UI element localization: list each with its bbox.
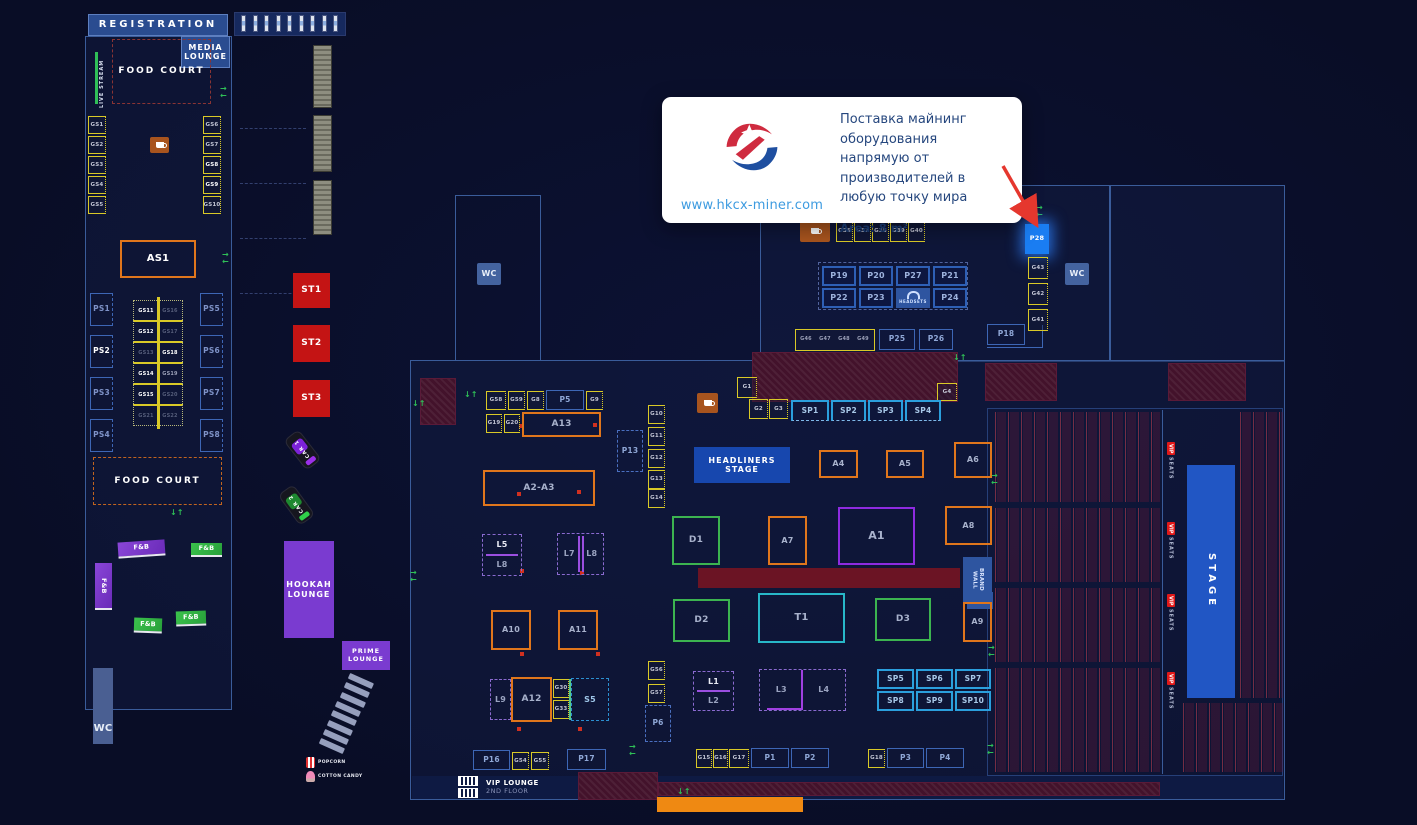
wc-main-left[interactable]: WC xyxy=(477,263,501,285)
vip-badge: VIP xyxy=(1167,594,1175,607)
booth-label: S5 xyxy=(584,695,596,704)
popcorn-label: POPCORN xyxy=(318,760,346,765)
booth-label: G47 xyxy=(819,337,831,343)
booth-gs17[interactable]: GS17 xyxy=(159,325,181,341)
booth-g12[interactable]: G12 xyxy=(648,449,665,468)
live-stream-line xyxy=(95,52,98,104)
turnstile-gate xyxy=(253,15,258,32)
booth-label: SP5 xyxy=(887,675,904,684)
booth-label: WC xyxy=(94,723,113,735)
vip-seats-label: VIPSEATS xyxy=(1164,594,1177,646)
booth-label: SP10 xyxy=(962,697,984,706)
booth-g30[interactable]: G30 xyxy=(553,679,569,698)
escalator xyxy=(313,180,332,235)
booth-g19[interactable]: G19 xyxy=(486,414,502,433)
audience-seats xyxy=(995,668,1160,772)
booth-p20[interactable]: P20 xyxy=(859,266,893,286)
booth-label: GS13 xyxy=(138,351,153,357)
booth-g3[interactable]: G3 xyxy=(769,399,788,419)
booth-label: FOOD COURT xyxy=(118,66,204,76)
booth-gs13[interactable]: GS13 xyxy=(135,346,157,362)
booth-label: G46 xyxy=(800,337,812,343)
booth-p27[interactable]: P27 xyxy=(896,266,930,286)
entrance-arrows-icon: ↓↑ xyxy=(677,789,690,796)
booth-g56[interactable]: G56 xyxy=(648,661,665,680)
booth-p18[interactable]: P18 xyxy=(987,324,1025,345)
booth-label: HEADLINERS STAGE xyxy=(708,456,775,474)
booth-g16[interactable]: G16 xyxy=(713,749,728,768)
entrance-arrows-icon: →← xyxy=(987,743,994,757)
booth-g17[interactable]: G17 xyxy=(729,749,749,768)
booth-label: STAGE xyxy=(1205,553,1217,609)
booth-g4[interactable]: G4 xyxy=(937,383,957,401)
fnb-stand[interactable]: F&B xyxy=(134,618,163,634)
booth-label: G33 xyxy=(555,706,568,712)
seats-label: SEATS xyxy=(1168,457,1174,480)
fnb-stand[interactable]: F&B xyxy=(95,563,112,610)
coffee-cup-icon xyxy=(150,137,169,153)
booth-label: P13 xyxy=(622,447,639,456)
booth-sp4[interactable]: SP4 xyxy=(905,400,941,421)
booth-label: G57 xyxy=(650,690,663,696)
booth-g58[interactable]: G58 xyxy=(486,391,506,410)
headliners-stage-zone[interactable]: HEADLINERS STAGE xyxy=(694,447,790,483)
brand-wall-zone[interactable]: BRAND WALL xyxy=(963,557,992,602)
turnstile-gate xyxy=(241,15,246,32)
booth-a6[interactable]: A6 xyxy=(954,442,992,478)
booth-label: G19 xyxy=(488,420,501,426)
turnstile-gate xyxy=(333,15,338,32)
booth-p6[interactable]: P6 xyxy=(645,705,671,742)
booth-p1[interactable]: P1 xyxy=(751,748,789,768)
wc-left-hall[interactable]: WC xyxy=(93,668,113,744)
booth-g13[interactable]: G13 xyxy=(648,470,665,489)
booth-sp6[interactable]: SP6 xyxy=(916,669,953,689)
booth-gs6[interactable]: GS6 xyxy=(203,116,221,134)
booth-label: G20 xyxy=(506,420,519,426)
booth-label: G4 xyxy=(943,389,952,395)
booth-ps4[interactable]: PS4 xyxy=(90,419,113,452)
booth-p4[interactable]: P4 xyxy=(926,748,964,768)
booth-label: A12 xyxy=(521,694,541,704)
booth-label: G11 xyxy=(650,433,663,439)
vip-badge: VIP xyxy=(1167,672,1175,685)
entrance-arrows-icon: →← xyxy=(220,86,227,100)
vip-seats-label: VIPSEATS xyxy=(1164,522,1177,574)
booth-label: AS1 xyxy=(147,253,170,265)
booth-sp2[interactable]: SP2 xyxy=(831,400,866,421)
booth-ps6[interactable]: PS6 xyxy=(200,335,223,368)
wc-main-right[interactable]: WC xyxy=(1065,263,1089,285)
booth-label: F&B xyxy=(133,544,149,553)
booth-gs19[interactable]: GS19 xyxy=(159,367,181,383)
cotton-candy-label: COTTON CANDY xyxy=(318,774,363,779)
booth-g49[interactable]: G49 xyxy=(854,331,872,348)
booth-p25[interactable]: P25 xyxy=(879,329,915,350)
booth-label: GS4 xyxy=(91,182,104,188)
booth-a7[interactable]: A7 xyxy=(768,516,807,565)
booth-gs8[interactable]: GS8 xyxy=(203,156,221,174)
booth-t1[interactable]: T1 xyxy=(758,593,845,643)
hkcx-miner-logo xyxy=(723,118,781,176)
turnstile-gate xyxy=(310,15,315,32)
booth-label: D3 xyxy=(896,614,910,624)
booth-label: A4 xyxy=(832,459,844,468)
booth-label: A5 xyxy=(899,459,911,468)
expo-floorplan-app: { "popup": { "description": "Поставка ма… xyxy=(0,0,1417,825)
booth-gs10[interactable]: GS10 xyxy=(203,196,221,214)
booth-ps8[interactable]: PS8 xyxy=(200,419,223,452)
booth-p16[interactable]: P16 xyxy=(473,750,510,770)
booth-headsets[interactable]: HEADSETS xyxy=(896,288,930,308)
booth-label: T1 xyxy=(794,612,808,624)
carpet-area xyxy=(578,772,658,800)
booth-label: D2 xyxy=(694,615,708,625)
booth-label: L8 xyxy=(586,549,597,558)
seats-label: SEATS xyxy=(1168,687,1174,710)
booth-p24[interactable]: P24 xyxy=(933,288,967,308)
booth-p23[interactable]: P23 xyxy=(859,288,893,308)
booth-label: G42 xyxy=(1032,291,1045,297)
coffee-cup-icon xyxy=(697,393,718,413)
hall-outline-3 xyxy=(1110,185,1285,362)
booth-ps2[interactable]: PS2 xyxy=(90,335,113,368)
booth-st1[interactable]: ST1 xyxy=(293,273,330,308)
booth-a1[interactable]: A1 xyxy=(838,507,915,565)
booth-st2[interactable]: ST2 xyxy=(293,325,330,362)
booth-label: HEADSETS xyxy=(899,300,927,305)
booth-label: G12 xyxy=(650,455,663,461)
entrance-mat xyxy=(657,797,803,812)
booth-g20[interactable]: G20 xyxy=(504,414,520,433)
booth-label: L3 xyxy=(776,685,787,694)
booth-g33[interactable]: G33 xyxy=(553,700,569,719)
booth-label: BRAND WALL xyxy=(971,568,984,591)
booth-label: P16 xyxy=(483,756,500,765)
booth-g57[interactable]: G57 xyxy=(648,684,665,703)
booth-label: PS6 xyxy=(203,347,220,356)
booth-label: P20 xyxy=(867,271,885,280)
booth-g18[interactable]: G18 xyxy=(868,749,885,768)
booth-a2-a3[interactable]: A2-A3 xyxy=(483,470,595,506)
booth-gs2[interactable]: GS2 xyxy=(88,136,106,154)
booth-label: WC xyxy=(481,269,496,278)
booth-label: P22 xyxy=(830,293,848,302)
booth-label: F&B xyxy=(199,545,215,552)
turnstile-gate xyxy=(322,15,327,32)
booth-label: SP4 xyxy=(915,407,932,416)
audience-seats xyxy=(995,508,1160,582)
booth-g43[interactable]: G43 xyxy=(1028,257,1048,279)
booth-website-link[interactable]: www.hkcx-miner.com xyxy=(681,198,823,213)
booth-label: ST2 xyxy=(301,338,321,348)
booth-label: F&B xyxy=(140,620,156,628)
vip-seats-label: VIPSEATS xyxy=(1164,672,1177,724)
booth-label: G49 xyxy=(857,337,869,343)
booth-label: GS5 xyxy=(91,202,104,208)
booth-label: GS11 xyxy=(138,309,153,315)
booth-ps3[interactable]: PS3 xyxy=(90,377,113,410)
booth-label: G54 xyxy=(514,758,527,764)
booth-label: GS18 xyxy=(162,351,177,357)
booth-gs11[interactable]: GS11 xyxy=(135,304,157,320)
booth-label: GS7 xyxy=(206,142,219,148)
booth-a13[interactable]: A13 xyxy=(522,412,601,437)
popcorn-icon xyxy=(306,757,315,768)
booth-gs1[interactable]: GS1 xyxy=(88,116,106,134)
entrance-arrows-icon: ↓↑ xyxy=(953,355,966,362)
booth-l7-l8[interactable]: L7L8 xyxy=(557,533,604,575)
booth-label: SP1 xyxy=(802,407,819,416)
wall-line xyxy=(1162,410,1163,774)
booth-label: G8 xyxy=(531,397,540,403)
food-court-bottom-zone[interactable]: FOOD COURT xyxy=(93,457,222,505)
booth-label: A8 xyxy=(962,521,974,530)
booth-marker-dot xyxy=(578,727,582,731)
booth-a10[interactable]: A10 xyxy=(491,610,531,650)
escalator xyxy=(313,45,332,108)
turnstile-gate xyxy=(276,15,281,32)
booth-sp9[interactable]: SP9 xyxy=(916,691,953,711)
booth-marker-dot xyxy=(596,652,600,656)
booth-gs5[interactable]: GS5 xyxy=(88,196,106,214)
booth-label: G48 xyxy=(838,337,850,343)
booth-label: PS1 xyxy=(93,305,110,314)
booth-label: G3 xyxy=(774,406,783,412)
booth-label: G1 xyxy=(743,384,752,390)
booth-sp8[interactable]: SP8 xyxy=(877,691,914,711)
vip-badge: VIP xyxy=(1167,442,1175,455)
booth-label: G10 xyxy=(650,411,663,417)
audience-seats xyxy=(995,412,1160,502)
booth-info-popup: www.hkcx-miner.com Поставка майнинг обор… xyxy=(662,97,1022,223)
wall-line xyxy=(540,195,541,361)
booth-as1[interactable]: AS1 xyxy=(120,240,196,278)
booth-description: Поставка майнинг оборудования напрямую о… xyxy=(840,110,1004,208)
booth-label: A9 xyxy=(971,617,983,626)
booth-label: G9 xyxy=(590,397,599,403)
booth-marker-dot xyxy=(517,727,521,731)
popcorn-cotton-candy-stand: POPCORN COTTON CANDY xyxy=(306,757,366,785)
booth-ps7[interactable]: PS7 xyxy=(200,377,223,410)
booth-label: SP6 xyxy=(926,675,943,684)
booth-sp7[interactable]: SP7 xyxy=(955,669,991,689)
food-court-top-zone[interactable]: FOOD COURT xyxy=(112,39,211,104)
booth-g14[interactable]: G14 xyxy=(648,489,665,508)
booth-label: GS14 xyxy=(138,372,153,378)
booth-g48[interactable]: G48 xyxy=(835,331,853,348)
booth-label: G15 xyxy=(698,755,711,761)
booth-g9[interactable]: G9 xyxy=(586,391,603,410)
booth-p26[interactable]: P26 xyxy=(919,329,953,350)
entrance-arrows-icon: →← xyxy=(988,645,995,659)
booth-sp3[interactable]: SP3 xyxy=(868,400,903,421)
booth-label: P6 xyxy=(652,719,663,728)
escalator xyxy=(313,115,332,172)
booth-label: G13 xyxy=(650,476,663,482)
seats-label: SEATS xyxy=(1168,609,1174,632)
booth-gs3[interactable]: GS3 xyxy=(88,156,106,174)
booth-l3-l4[interactable]: L3L4 xyxy=(759,669,846,711)
vip-lounge-floor-label: 2ND FLOOR xyxy=(486,787,539,795)
booth-label: P25 xyxy=(889,335,906,344)
prime-lounge-zone[interactable]: PRIME LOUNGE xyxy=(342,641,390,670)
booth-sp10[interactable]: SP10 xyxy=(955,691,991,711)
booth-a9[interactable]: A9 xyxy=(963,602,992,642)
wall-line xyxy=(987,347,1043,348)
booth-label: L1 xyxy=(708,677,719,686)
booth-label: G18 xyxy=(870,755,883,761)
booth-marker-dot xyxy=(520,652,524,656)
booth-g10[interactable]: G10 xyxy=(648,405,665,424)
booth-p21[interactable]: P21 xyxy=(933,266,967,286)
booth-label: P24 xyxy=(941,293,959,302)
fnb-stand[interactable]: F&B xyxy=(191,543,222,557)
booth-label: P1 xyxy=(764,754,775,763)
entrance-arrows-icon: ↓↑ xyxy=(464,392,477,399)
booth-gs21[interactable]: GS21 xyxy=(135,409,157,425)
booth-a11[interactable]: A11 xyxy=(558,610,598,650)
booth-label: GS2 xyxy=(91,142,104,148)
booth-sp5[interactable]: SP5 xyxy=(877,669,914,689)
booth-a12[interactable]: A12 xyxy=(511,677,552,722)
coffee-cup-icon xyxy=(800,220,830,242)
booth-g46[interactable]: G46 xyxy=(797,331,815,348)
carpet-area xyxy=(985,363,1057,401)
booth-g47[interactable]: G47 xyxy=(816,331,834,348)
carpet-area xyxy=(658,782,1160,796)
vip-badge: VIP xyxy=(1167,522,1175,535)
booth-l5-l8[interactable]: L5L8 xyxy=(482,534,522,576)
booth-label: GS12 xyxy=(138,330,153,336)
booth-d1[interactable]: D1 xyxy=(672,516,720,565)
booth-label: ST3 xyxy=(301,393,321,403)
booth-label: P26 xyxy=(928,335,945,344)
booth-ps5[interactable]: PS5 xyxy=(200,293,223,326)
booth-label: P17 xyxy=(578,755,595,764)
booth-p22[interactable]: P22 xyxy=(822,288,856,308)
booth-g54[interactable]: G54 xyxy=(512,752,529,770)
audience-seats xyxy=(1240,412,1283,698)
booth-g1[interactable]: G1 xyxy=(737,377,757,398)
booth-gs18[interactable]: GS18 xyxy=(159,346,181,362)
booth-label: GS10 xyxy=(204,202,221,208)
booth-label: G30 xyxy=(555,685,568,691)
booth-label: P27 xyxy=(904,271,922,280)
booth-label: GS22 xyxy=(162,414,177,420)
booth-label: GS15 xyxy=(138,393,153,399)
booth-p17[interactable]: P17 xyxy=(567,749,606,770)
booth-g8[interactable]: G8 xyxy=(527,391,544,410)
booth-g55[interactable]: G55 xyxy=(531,752,549,770)
booth-label: P5 xyxy=(559,396,570,405)
booth-label: P3 xyxy=(900,754,911,763)
booth-label: D1 xyxy=(689,535,703,545)
booth-label: PRIME LOUNGE xyxy=(348,648,384,663)
carpet-area xyxy=(752,352,958,402)
vip-lounge-zone: VIP LOUNGE 2ND FLOOR xyxy=(458,774,539,800)
booth-p5[interactable]: P5 xyxy=(546,390,584,410)
fnb-stand[interactable]: F&B xyxy=(117,539,165,558)
booth-gs22[interactable]: GS22 xyxy=(159,409,181,425)
booth-label: F&B xyxy=(183,613,199,621)
vip-lounge-label: VIP LOUNGE xyxy=(486,779,539,787)
booth-a5[interactable]: A5 xyxy=(886,450,924,478)
booth-gs14[interactable]: GS14 xyxy=(135,367,157,383)
booth-p19[interactable]: P19 xyxy=(822,266,856,286)
booth-label: GS9 xyxy=(206,182,219,188)
booth-label: A10 xyxy=(502,625,520,634)
booth-sp1[interactable]: SP1 xyxy=(791,400,829,421)
booth-a4[interactable]: A4 xyxy=(819,450,858,478)
booth-g59[interactable]: G59 xyxy=(508,391,525,410)
vip-seats-label: VIPSEATS xyxy=(1164,442,1177,494)
hookah-lounge-zone[interactable]: HOOKAH LOUNGE xyxy=(284,541,334,638)
booth-g2[interactable]: G2 xyxy=(749,399,768,419)
booth-label: A1 xyxy=(868,530,885,543)
booth-l9[interactable]: L9 xyxy=(490,679,511,720)
booth-label: G59 xyxy=(510,397,523,403)
booth-label: SP8 xyxy=(887,697,904,706)
booth-g15[interactable]: G15 xyxy=(696,749,712,768)
booth-a8[interactable]: A8 xyxy=(945,506,992,545)
booth-gs20[interactable]: GS20 xyxy=(159,388,181,404)
parking-guide-line xyxy=(240,183,306,184)
booth-p3[interactable]: P3 xyxy=(887,748,924,768)
booth-label: L8 xyxy=(496,560,507,569)
booth-g42[interactable]: G42 xyxy=(1028,283,1048,305)
booth-gs12[interactable]: GS12 xyxy=(135,325,157,341)
booth-g11[interactable]: G11 xyxy=(648,427,665,446)
booth-gs15[interactable]: GS15 xyxy=(135,388,157,404)
registration-banner[interactable]: REGISTRATION xyxy=(88,14,228,36)
booth-gs9[interactable]: GS9 xyxy=(203,176,221,194)
parking-guide-line xyxy=(240,128,306,129)
booth-label: HOOKAH LOUNGE xyxy=(286,580,331,598)
booth-s5[interactable]: S5 xyxy=(571,678,609,721)
booth-label: ST1 xyxy=(301,285,321,295)
booth-label: GS1 xyxy=(91,122,104,128)
stairs-icon xyxy=(458,774,478,800)
booth-area-value: Area: 8 m² xyxy=(840,221,1004,235)
main-stage-zone[interactable]: STAGE xyxy=(1187,465,1235,698)
booth-p2[interactable]: P2 xyxy=(791,748,829,768)
turnstile-gate xyxy=(264,15,269,32)
booth-p13[interactable]: P13 xyxy=(617,430,643,472)
booth-label: PS2 xyxy=(93,347,110,356)
booth-label: P18 xyxy=(998,330,1015,339)
booth-gs7[interactable]: GS7 xyxy=(203,136,221,154)
fnb-stand[interactable]: F&B xyxy=(176,610,207,626)
booth-gs16[interactable]: GS16 xyxy=(159,304,181,320)
booth-l1-l2[interactable]: L1L2 xyxy=(693,671,734,711)
booth-label: P4 xyxy=(939,754,950,763)
audience-seats xyxy=(1183,703,1283,772)
booth-label: SP9 xyxy=(926,697,943,706)
booth-d2[interactable]: D2 xyxy=(673,599,730,642)
cotton-candy-icon xyxy=(306,771,315,782)
booth-label: GS16 xyxy=(162,309,177,315)
booth-label: FOOD COURT xyxy=(114,476,200,486)
booth-d3[interactable]: D3 xyxy=(875,598,931,641)
booth-gs4[interactable]: GS4 xyxy=(88,176,106,194)
booth-g41[interactable]: G41 xyxy=(1028,309,1048,331)
booth-label: L2 xyxy=(708,696,719,705)
booth-label: L4 xyxy=(818,685,829,694)
booth-ps1[interactable]: PS1 xyxy=(90,293,113,326)
booth-label: L5 xyxy=(496,540,507,549)
booth-st3[interactable]: ST3 xyxy=(293,380,330,417)
